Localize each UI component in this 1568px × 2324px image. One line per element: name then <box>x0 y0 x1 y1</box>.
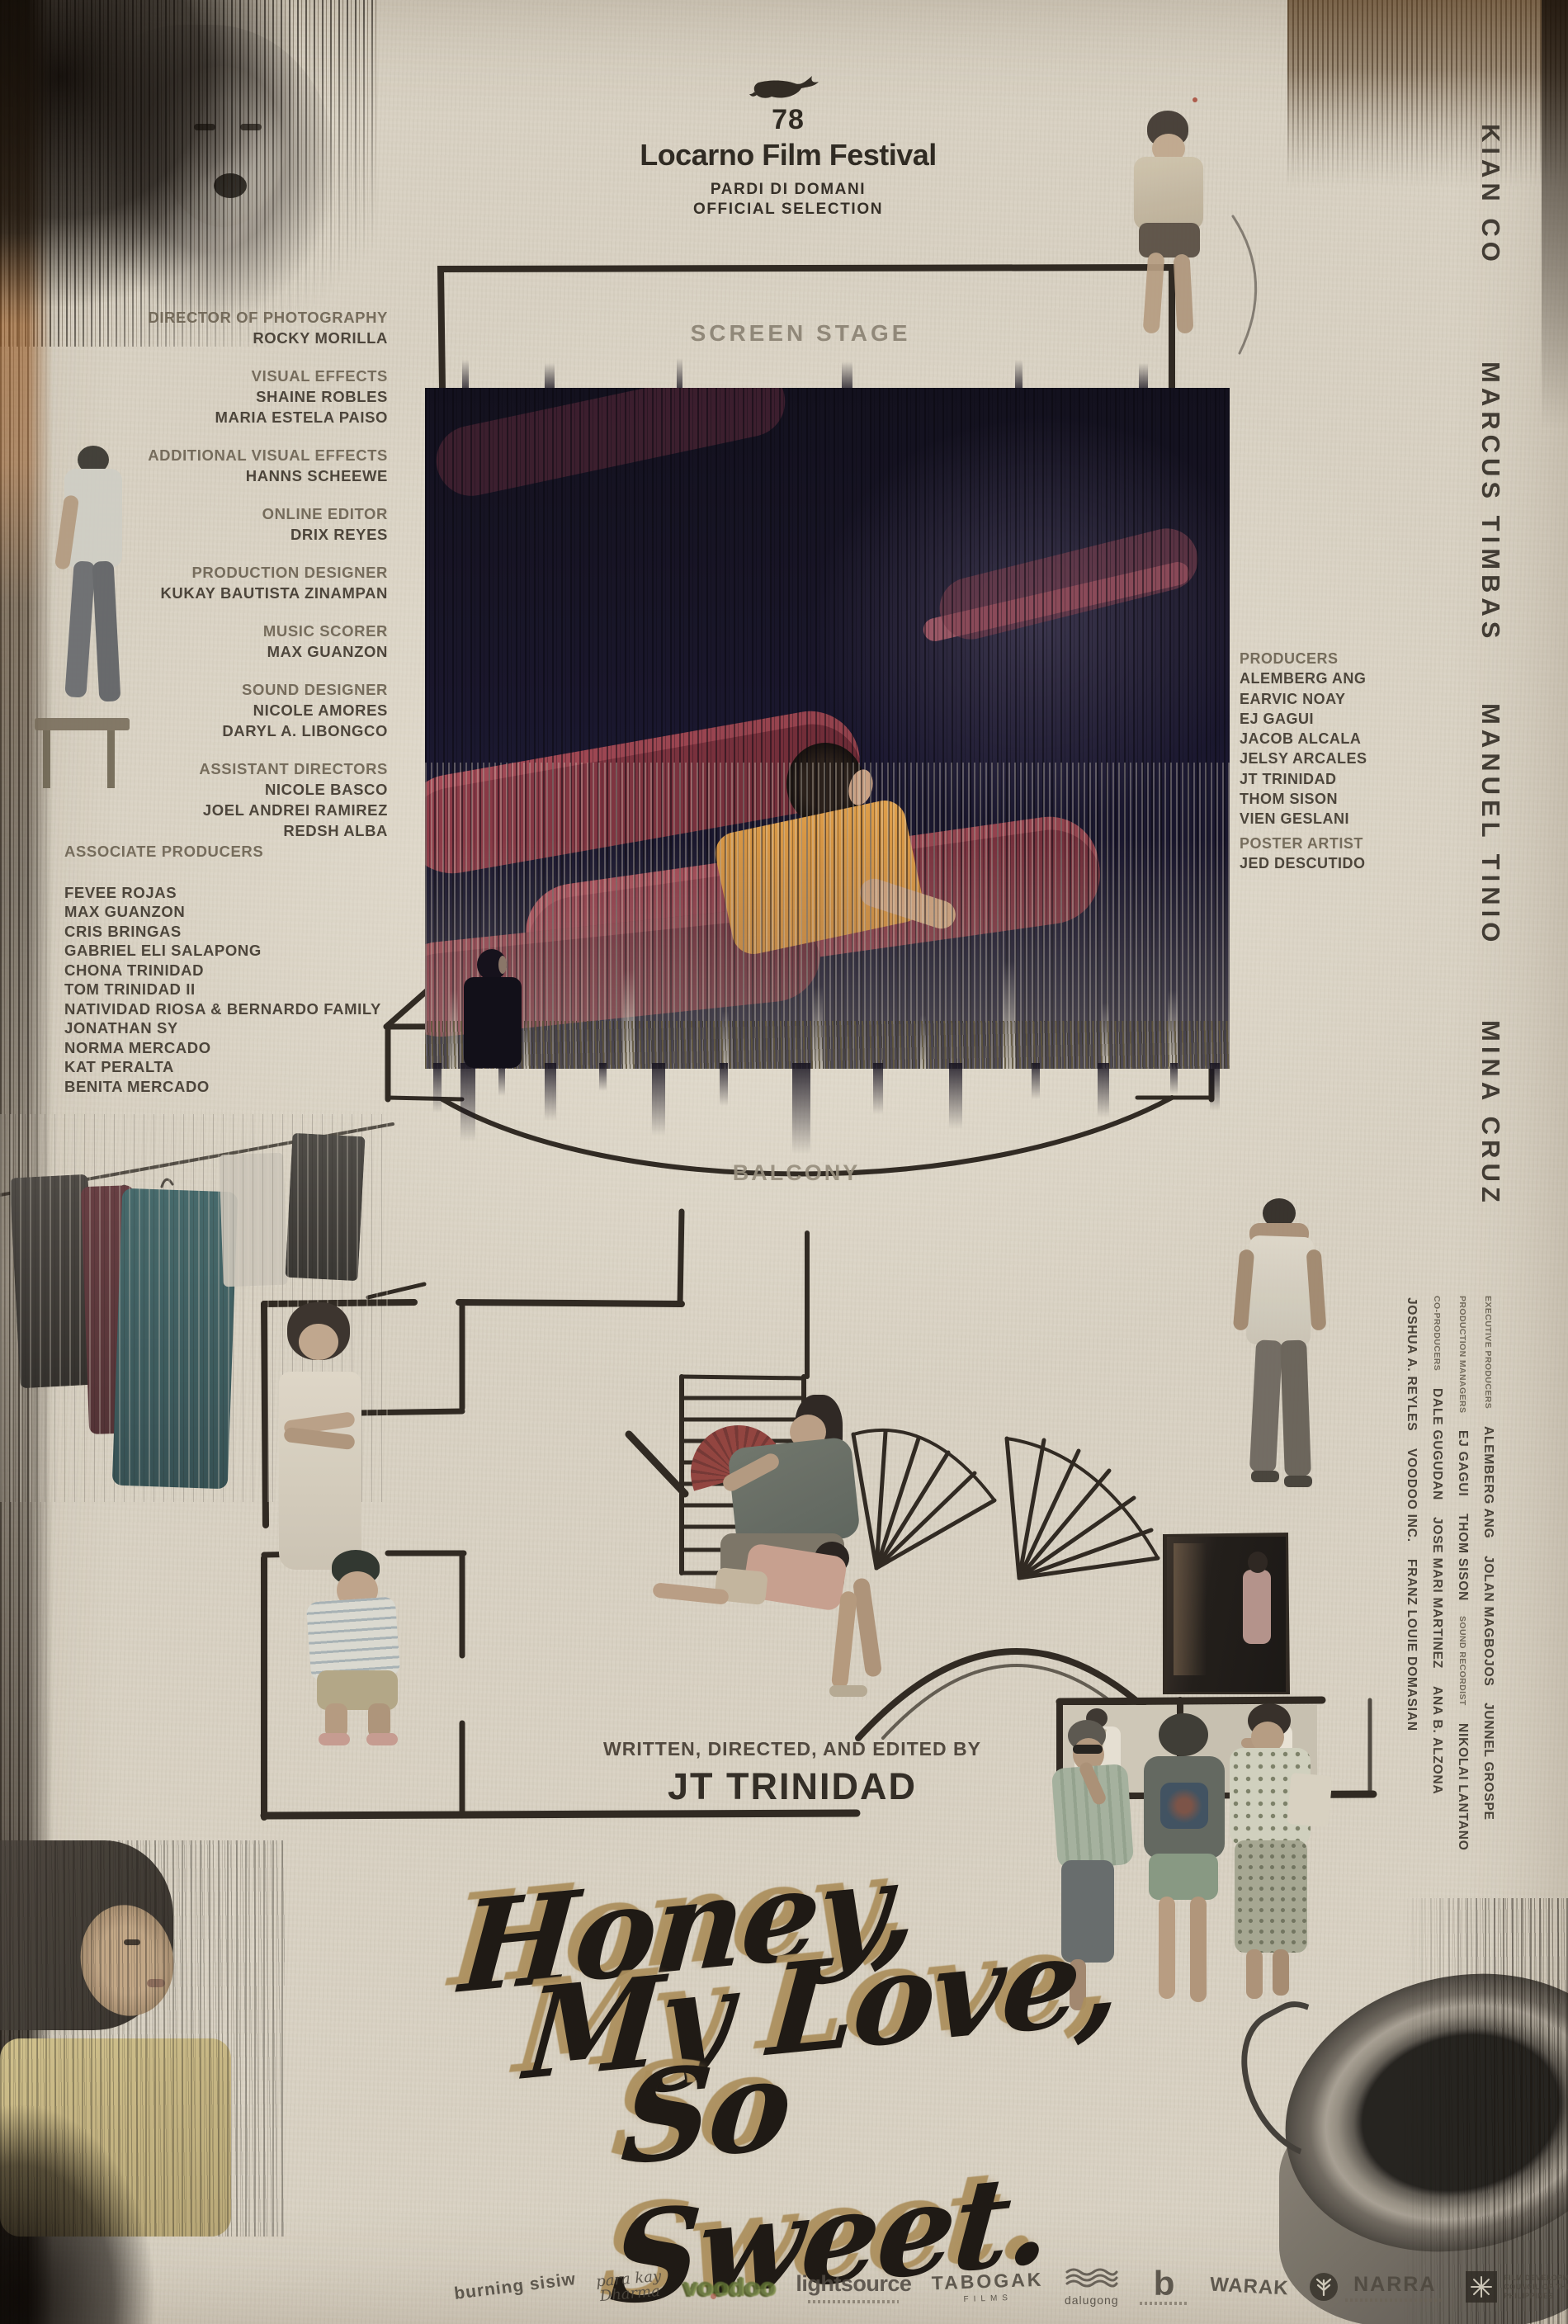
man1-pants <box>1249 1339 1282 1472</box>
paint-drip <box>1210 1063 1220 1111</box>
credit-name: BENITA MERCADO <box>64 1077 411 1097</box>
side-credit-name: THOM SISON <box>1455 1514 1470 1601</box>
festival-section: PARDI DI DOMANI OFFICIAL SELECTION <box>615 180 961 220</box>
festival-edition: 78 <box>615 104 961 136</box>
leopard-icon <box>749 73 828 102</box>
festival-block: 78 Locarno Film Festival PARDI DI DOMANI… <box>615 73 961 220</box>
dalugong-text: dalugong <box>1065 2293 1119 2307</box>
paint-drip <box>720 1063 728 1106</box>
kid-cap-hair <box>1159 1713 1208 1756</box>
dharma-text: Dharma <box>597 2284 663 2305</box>
boy4-shoe <box>319 1733 350 1745</box>
credit-name: MARIA ESTELA PAISO <box>58 407 388 427</box>
edge-paint-top-right <box>1287 0 1568 198</box>
silhouette-body <box>464 977 522 1068</box>
woman2-leg <box>852 1577 883 1678</box>
credit-name: JED DESCUTIDO <box>1240 853 1454 873</box>
narra-text: NARRA <box>1345 2273 1444 2297</box>
fdcp-text: FILM DEVELOPMENT COUNCIL OF THE PHILIPPI… <box>1504 2274 1568 2301</box>
side-credit-name: VOODOO INC. <box>1404 1448 1419 1542</box>
credit-name: SHAINE ROBLES <box>58 386 388 407</box>
edge-paint-bottom-right <box>1403 1898 1568 2324</box>
red-speck <box>711 2293 716 2299</box>
credit-name: JELSY ARCALES <box>1240 749 1454 768</box>
film-poster: 78 Locarno Film Festival PARDI DI DOMANI… <box>0 0 1568 2324</box>
man1-shoe <box>1251 1471 1279 1482</box>
paint-drip <box>599 1063 607 1091</box>
credit-name: CHONA TRINIDAD <box>64 961 411 980</box>
man1-shoe <box>1284 1476 1312 1487</box>
credit-name: GABRIEL ELI SALAPONG <box>64 941 411 961</box>
credit-name: NATIVIDAD RIOSA & BERNARDO FAMILY <box>64 999 411 1019</box>
photo-man-tanktop <box>1231 1198 1330 1502</box>
side-credit-name: ANA B. ALZONA <box>1429 1686 1444 1795</box>
bench-leg <box>107 730 115 788</box>
paint-fray <box>677 358 682 388</box>
tabogak-films-logo: TABOGAK FILMS <box>932 2269 1045 2306</box>
screen-painting <box>425 388 1230 1069</box>
side-credit-name: DALE GUGUDAN <box>1429 1388 1444 1500</box>
kid-leg <box>1190 1897 1207 2002</box>
lightsource-caption-bar <box>808 2300 899 2303</box>
girl-face <box>299 1324 338 1360</box>
waves-icon <box>1065 2267 1118 2289</box>
credit-name: JONATHAN SY <box>64 1018 411 1038</box>
associate-producers-title: ASSOCIATE PRODUCERS <box>64 842 411 862</box>
b-caption-bar <box>1140 2302 1189 2305</box>
balcony-label: BALCONY <box>697 1160 895 1186</box>
fdcp-seal-icon <box>1465 2270 1498 2303</box>
boy2-leg <box>1143 252 1165 333</box>
boy3-jeans <box>64 560 95 697</box>
paint-fray <box>462 360 469 388</box>
credit-role: VISUAL EFFECTS <box>58 366 388 386</box>
boy2-leg <box>1174 254 1194 334</box>
para-kay-dharma-logo: para kay Dharma <box>596 2270 664 2305</box>
lightsource-logo: lightsource <box>796 2271 911 2303</box>
corner-paint-top-left <box>0 0 380 347</box>
paint-drip <box>1170 1063 1178 1094</box>
production-logos-row: burning sisiw para kay Dharma voodoo lig… <box>454 2251 1279 2322</box>
woman3-box <box>1287 1773 1332 1827</box>
bench-leg <box>43 730 50 788</box>
paint-fray <box>545 363 555 388</box>
paint-drip <box>1032 1063 1040 1099</box>
boy2-shorts <box>1139 223 1200 257</box>
dark-room-figure <box>1243 1570 1271 1644</box>
boy4-shoe <box>366 1733 398 1745</box>
side-credit-name: JOSE MARI MARTINEZ <box>1429 1517 1444 1669</box>
b-logo-text: b <box>1154 2264 1175 2303</box>
bench <box>35 718 130 730</box>
credit-name: JT TRINIDAD <box>1240 769 1454 789</box>
director-name: JT TRINIDAD <box>545 1765 1040 1808</box>
woman2-sandal <box>829 1685 867 1697</box>
photo-child-silhouette <box>452 949 543 1073</box>
paint-drip <box>949 1063 962 1129</box>
side-credit-name: EJ GAGUI <box>1455 1430 1470 1496</box>
kid-leg <box>1159 1897 1175 1999</box>
billing-credit: WRITTEN, DIRECTED, AND EDITED BY <box>545 1738 1040 1760</box>
side-credit-name: JUNNEL GROSPE <box>1481 1703 1495 1821</box>
voodoo-text: voodoo <box>682 2272 775 2301</box>
narra-logo: NARRA <box>1309 2272 1444 2302</box>
paint-fray <box>1015 360 1023 388</box>
credit-name: TOM TRINIDAD II <box>64 980 411 999</box>
side-credit-name: JOSHUA A. REYLES <box>1404 1297 1419 1431</box>
photo-squatting-boy <box>289 1550 421 1748</box>
photo-boy-on-bench <box>35 446 150 792</box>
side-credits-column: CO-PRODUCERS DALE GUGUDAN JOSE MARI MART… <box>1429 1284 1444 1977</box>
side-credit-label: SOUND RECORDIST <box>1457 1616 1467 1706</box>
paint-fray <box>1139 363 1148 388</box>
film-title: Honey, My Love, So Sweet. <box>425 1814 1176 2324</box>
paint-drip <box>460 1063 475 1141</box>
producers-title: PRODUCERS <box>1240 649 1454 668</box>
credit-name: CRIS BRINGAS <box>64 922 411 942</box>
side-credits-block: EXECUTIVE PRODUCERS ALEMBERG ANG JOLAN M… <box>1393 1284 1495 1977</box>
warak-logo: WARAK <box>1209 2274 1289 2301</box>
burning-sisiw-logo: burning sisiw <box>453 2270 577 2304</box>
credit-name: EJ GAGUI <box>1240 709 1454 729</box>
paint-drip <box>652 1063 665 1136</box>
credit-name: NORMA MERCADO <box>64 1038 411 1058</box>
credit-name: ALEMBERG ANG <box>1240 668 1454 688</box>
paint-drip <box>1098 1063 1109 1117</box>
cast-name-manuel-tinio: MANUEL TINIO <box>1476 703 1505 947</box>
woman2-blouse <box>727 1436 861 1549</box>
credit-name: MAX GUANZON <box>64 902 411 922</box>
paint-drip <box>873 1063 883 1114</box>
credit-name: KAT PERALTA <box>64 1057 411 1077</box>
paint-drip <box>792 1063 810 1154</box>
boy2-shirt <box>1134 157 1203 229</box>
credit-name: VIEN GESLANI <box>1240 809 1454 829</box>
paint-drip <box>545 1063 556 1121</box>
side-credit-label: EXECUTIVE PRODUCERS <box>1483 1296 1493 1409</box>
credit-role: DIRECTOR OF PHOTOGRAPHY <box>58 307 388 328</box>
man1-pants <box>1280 1339 1311 1476</box>
dark-room-figure-head <box>1248 1552 1268 1573</box>
kid-shorts <box>1149 1854 1218 1900</box>
tabogak-text: TABOGAK <box>932 2269 1044 2295</box>
red-speck <box>1193 97 1197 102</box>
side-credits-column: JOSHUA A. REYLES VOODOO INC. FRANZ LOUIE… <box>1404 1284 1419 1977</box>
cast-name-marcus-timbas: MARCUS TIMBAS <box>1476 361 1505 644</box>
festival-name: Locarno Film Festival <box>615 138 961 172</box>
credit-group: VISUAL EFFECTS SHAINE ROBLES MARIA ESTEL… <box>58 366 388 427</box>
silhouette-face-edge <box>498 956 507 974</box>
photo-boy-on-frame <box>1099 106 1235 353</box>
narra-caption-bar <box>1345 2298 1444 2302</box>
man2-sunglasses <box>1073 1745 1103 1754</box>
credit-name: JOEL ANDREI RAMIREZ <box>58 800 388 820</box>
photo-dark-room <box>1167 1537 1286 1692</box>
side-credit-name: JOLAN MAGBOJOS <box>1481 1556 1495 1686</box>
corner-paint-bottom-left <box>0 2080 190 2324</box>
festival-section-line1: PARDI DI DOMANI <box>615 180 961 200</box>
warak-text: WARAK <box>1209 2274 1289 2300</box>
credit-name: FEVEE ROJAS <box>64 883 411 903</box>
boy3-jeans <box>92 560 121 701</box>
cast-name-kian-co: KIAN CO <box>1476 124 1505 267</box>
burning-sisiw-text: burning sisiw <box>453 2270 577 2303</box>
woman3-floral-pants <box>1235 1840 1307 1953</box>
credit-group: DIRECTOR OF PHOTOGRAPHY ROCKY MORILLA <box>58 307 388 348</box>
credit-name: JACOB ALCALA <box>1240 729 1454 749</box>
side-credit-name: FRANZ LOUIE DOMASIAN <box>1404 1559 1419 1731</box>
credit-name: ROCKY MORILLA <box>58 328 388 348</box>
side-credit-name: ALEMBERG ANG <box>1481 1426 1495 1538</box>
man1-tank <box>1246 1235 1315 1347</box>
tabogak-films-text: FILMS <box>933 2293 1045 2306</box>
b-films-logo: b <box>1140 2269 1189 2305</box>
poster-artist-title: POSTER ARTIST <box>1240 834 1454 853</box>
kid-backpack-print <box>1160 1783 1208 1829</box>
fdcp-logo: FILM DEVELOPMENT COUNCIL OF THE PHILIPPI… <box>1465 2270 1568 2303</box>
screen-stage-label: SCREEN STAGE <box>635 320 966 347</box>
side-credits-column: EXECUTIVE PRODUCERS ALEMBERG ANG JOLAN M… <box>1481 1284 1495 1977</box>
cast-name-mina-cruz: MINA CRUZ <box>1476 1020 1505 1207</box>
edge-paint-right-sliver <box>1542 0 1568 429</box>
credit-name: REDSH ALBA <box>58 820 388 841</box>
associate-producers-block: ASSOCIATE PRODUCERS FEVEE ROJAS MAX GUAN… <box>64 842 411 1096</box>
lightsource-text: lightsource <box>796 2271 911 2296</box>
side-credit-label: CO-PRODUCERS <box>1432 1296 1442 1371</box>
billing-block: WRITTEN, DIRECTED, AND EDITED BY JT TRIN… <box>545 1738 1040 1808</box>
side-credits-column: PRODUCTION MANAGERS EJ GAGUI THOM SISON … <box>1455 1284 1470 1977</box>
boy4-striped-shirt <box>306 1596 400 1681</box>
credit-name: EARVIC NOAY <box>1240 689 1454 709</box>
poster-artist-block: POSTER ARTIST JED DESCUTIDO <box>1240 834 1454 874</box>
narra-tree-icon <box>1309 2272 1339 2302</box>
photo-girl-white-dress <box>271 1302 374 1576</box>
side-credit-label: PRODUCTION MANAGERS <box>1457 1296 1467 1413</box>
side-credit-name: NIKOLAI LANTANO <box>1455 1723 1470 1851</box>
screen-grass-band <box>425 1021 1230 1069</box>
dalugong-logo: dalugong <box>1065 2267 1119 2307</box>
paint-fray <box>842 361 852 388</box>
voodoo-logo: voodoo <box>682 2272 775 2302</box>
dark-room-light <box>1174 1543 1207 1675</box>
photo-woman-with-fan-and-child <box>623 1395 904 1725</box>
credit-name: THOM SISON <box>1240 789 1454 809</box>
girl-dress <box>279 1372 361 1570</box>
paint-drip <box>433 1063 442 1112</box>
festival-section-line2: OFFICIAL SELECTION <box>615 200 961 220</box>
producers-block: PRODUCERS ALEMBERG ANG EARVIC NOAY EJ GA… <box>1240 649 1454 829</box>
